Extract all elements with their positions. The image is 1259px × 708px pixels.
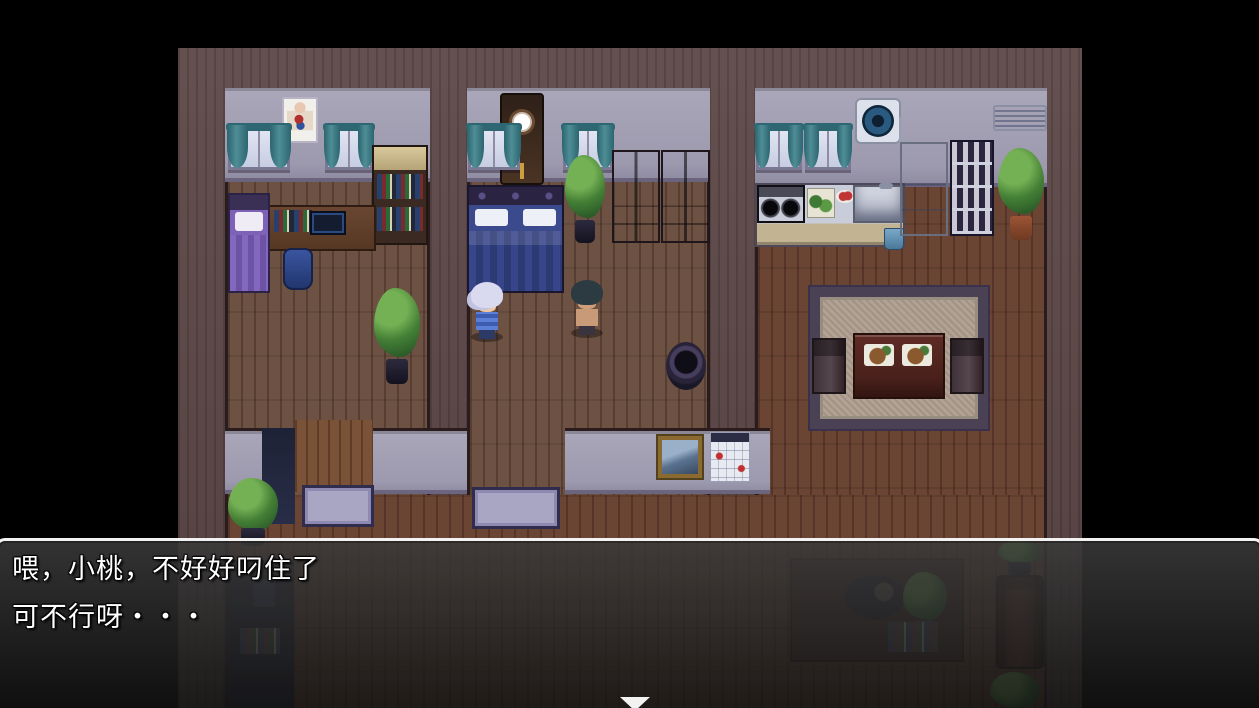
dish-with-tomatoes	[836, 190, 854, 203]
wall-calendar	[710, 432, 750, 482]
stove	[757, 185, 805, 223]
plant-pot	[1010, 216, 1032, 240]
bed-pillow	[523, 209, 556, 226]
potted-plant	[374, 288, 420, 384]
window-bar	[348, 128, 350, 167]
window	[468, 125, 520, 170]
dish-cabinet	[950, 140, 994, 236]
bookshelf-cabinet	[374, 147, 426, 170]
bed-pillow	[475, 209, 508, 226]
double-bed-blue	[467, 185, 564, 293]
computer-monitor	[310, 211, 346, 235]
wardrobe	[661, 150, 710, 243]
curtain	[788, 125, 803, 168]
curtain	[755, 125, 770, 168]
bed-headboard	[230, 195, 268, 210]
potted-plant	[565, 155, 605, 243]
potted-plant	[228, 478, 278, 546]
player-hair	[471, 282, 503, 308]
curtain	[837, 125, 852, 168]
window-bar	[493, 128, 495, 167]
plant-pot	[575, 220, 594, 243]
window	[756, 125, 802, 170]
window	[228, 125, 290, 170]
curtain	[270, 125, 291, 168]
calendar-header	[711, 433, 749, 442]
book-row	[377, 174, 423, 199]
curtain	[804, 125, 819, 168]
window-bar	[778, 128, 780, 167]
doormat	[472, 487, 560, 529]
desk-books	[274, 210, 312, 232]
player-character[interactable]	[468, 282, 506, 340]
bed-cover	[230, 235, 268, 291]
curtain	[227, 125, 248, 168]
bookshelf	[372, 145, 428, 245]
bed-pillow	[235, 212, 264, 231]
window-bar	[827, 128, 829, 167]
plant-pot	[386, 359, 408, 384]
desk-with-computer	[268, 205, 376, 251]
faucet	[879, 183, 893, 189]
curtain	[324, 125, 340, 168]
woven-basket	[666, 342, 706, 390]
potted-plant	[998, 148, 1044, 240]
refrigerator	[900, 142, 948, 236]
doormat	[302, 485, 374, 527]
dining-table	[853, 333, 945, 399]
plant-leaves	[998, 148, 1044, 214]
plant-leaves	[374, 288, 420, 357]
dialogue-line-2: 可不行呀・・・	[12, 593, 1259, 641]
continue-indicator-icon[interactable]	[620, 697, 650, 708]
npc-hair	[571, 280, 603, 305]
sink	[853, 185, 903, 223]
single-bed-purple	[228, 193, 270, 293]
plant-leaves	[565, 155, 605, 218]
fan-cord	[899, 117, 908, 143]
fan-blades	[862, 105, 894, 137]
meal-plate	[864, 344, 894, 366]
chair	[950, 338, 984, 394]
window	[805, 125, 851, 170]
player-body	[476, 312, 499, 329]
dialogue-line-1: 喂，小桃，不好好叼住了	[12, 545, 1259, 593]
book-row	[377, 207, 423, 232]
chair	[812, 338, 846, 394]
window	[325, 125, 373, 170]
meal-plate	[902, 344, 932, 366]
game-screen[interactable]: 喂，小桃，不好好叼住了 可不行呀・・・	[0, 0, 1259, 708]
cutting-board	[807, 188, 835, 218]
wardrobe	[612, 150, 660, 243]
curtain	[504, 125, 521, 168]
picture-frame	[658, 436, 702, 478]
entry-wall	[373, 428, 467, 494]
npc-legs	[579, 326, 596, 335]
curtain	[467, 125, 484, 168]
air-conditioner	[993, 105, 1047, 131]
npc-character[interactable]	[568, 280, 606, 336]
bed-headboard	[469, 187, 562, 205]
window-bar	[258, 128, 260, 167]
entry-floor	[295, 420, 373, 492]
player-legs	[479, 330, 496, 339]
npc-body	[576, 309, 599, 326]
exhaust-fan	[855, 98, 901, 144]
plant-leaves	[228, 478, 278, 531]
dialogue-window[interactable]: 喂，小桃，不好好叼住了 可不行呀・・・	[0, 538, 1259, 708]
blue-bin	[283, 248, 313, 290]
clock-pendulum	[520, 163, 524, 179]
